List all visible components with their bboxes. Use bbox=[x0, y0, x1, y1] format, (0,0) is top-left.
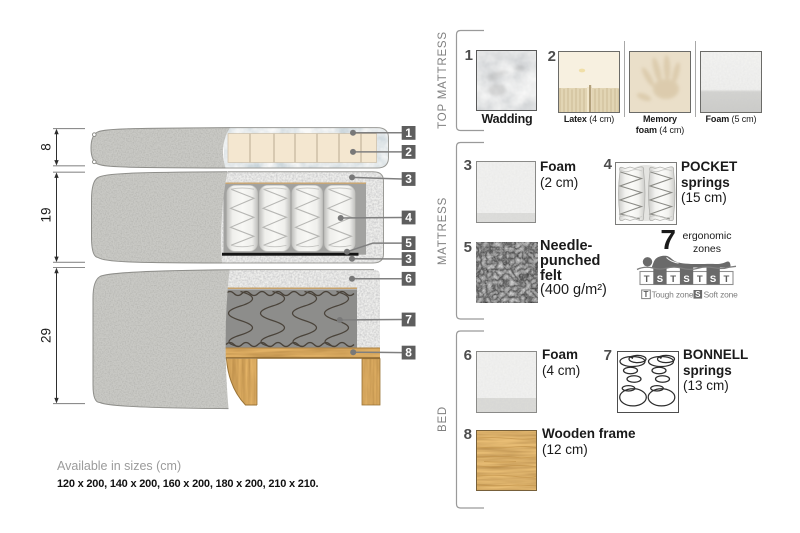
svg-text:3: 3 bbox=[405, 252, 412, 266]
svg-text:19: 19 bbox=[39, 207, 54, 222]
svg-text:T: T bbox=[670, 274, 676, 285]
svg-text:S: S bbox=[657, 274, 663, 285]
svg-text:S: S bbox=[710, 274, 716, 285]
svg-text:T: T bbox=[723, 274, 729, 285]
svg-text:29: 29 bbox=[39, 328, 54, 343]
svg-text:7: 7 bbox=[405, 312, 412, 326]
svg-text:T: T bbox=[644, 274, 650, 285]
svg-text:Soft zone: Soft zone bbox=[704, 289, 739, 299]
svg-text:S: S bbox=[695, 290, 701, 299]
svg-text:T: T bbox=[697, 274, 703, 285]
svg-text:T: T bbox=[644, 290, 649, 299]
svg-text:S: S bbox=[683, 274, 689, 285]
svg-text:6: 6 bbox=[405, 272, 412, 286]
svg-text:2: 2 bbox=[405, 145, 412, 159]
svg-text:1: 1 bbox=[405, 126, 412, 140]
svg-text:3: 3 bbox=[405, 172, 412, 186]
svg-text:5: 5 bbox=[405, 236, 412, 250]
svg-text:4: 4 bbox=[405, 210, 412, 224]
svg-text:Tough zone: Tough zone bbox=[652, 289, 694, 299]
svg-text:8: 8 bbox=[39, 143, 54, 151]
svg-text:8: 8 bbox=[405, 346, 412, 360]
